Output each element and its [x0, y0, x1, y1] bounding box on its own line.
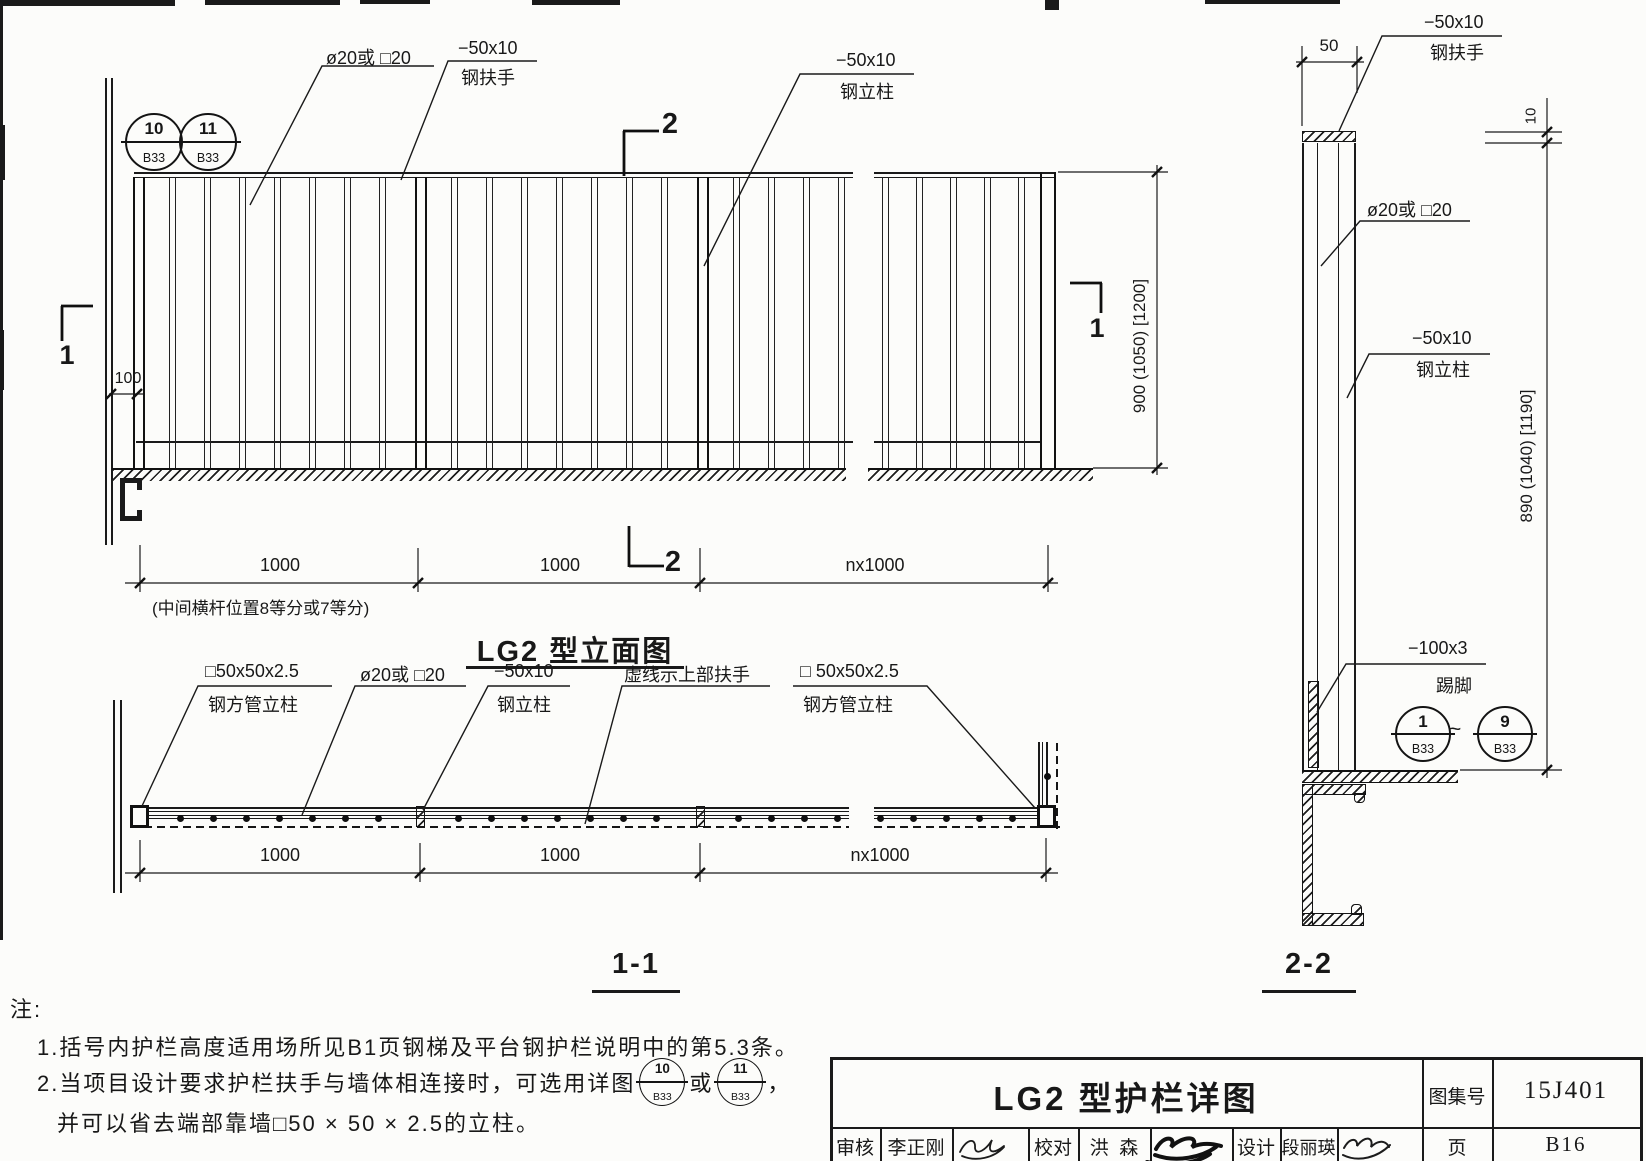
signature-checker: [1147, 1138, 1221, 1161]
section-cut-marks: [61, 131, 1102, 567]
dimension-lines: [109, 46, 1562, 882]
signature-designer: [1343, 1139, 1390, 1159]
dimension-ticks: [106, 57, 1552, 878]
leader-lines: [142, 36, 1502, 824]
signature-reviewer: [960, 1140, 1004, 1159]
linework-overlay: [0, 0, 1646, 1161]
drawing-sheet: 10 B33 11 B33 ø20或 □20 −50x10 钢扶手 −50x10…: [0, 0, 1646, 1161]
